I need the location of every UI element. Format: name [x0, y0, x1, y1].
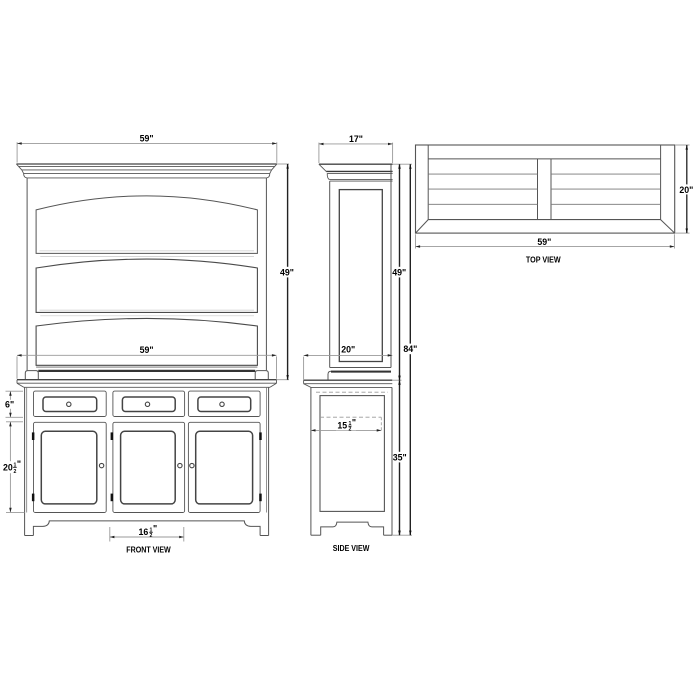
- svg-text:59": 59": [140, 345, 154, 355]
- svg-text:20": 20": [341, 345, 355, 355]
- svg-text:": ": [17, 459, 21, 469]
- svg-text:15: 15: [337, 421, 347, 431]
- svg-text:59": 59": [140, 134, 154, 144]
- svg-text:20: 20: [3, 463, 13, 473]
- svg-text:49": 49": [392, 267, 406, 277]
- svg-text:49": 49": [280, 267, 294, 277]
- svg-text:TOP VIEW: TOP VIEW: [526, 254, 561, 264]
- svg-text:35": 35": [393, 452, 407, 462]
- svg-text:6": 6": [5, 400, 14, 410]
- svg-text:20": 20": [679, 185, 693, 195]
- svg-text:": ": [352, 417, 356, 427]
- svg-text:SIDE VIEW: SIDE VIEW: [333, 543, 370, 553]
- svg-text:FRONT VIEW: FRONT VIEW: [126, 545, 171, 555]
- svg-text:17": 17": [349, 134, 363, 144]
- svg-text:16: 16: [139, 527, 149, 537]
- svg-text:2: 2: [150, 533, 153, 539]
- svg-text:2: 2: [13, 469, 16, 475]
- svg-text:59": 59": [537, 237, 551, 247]
- svg-text:": ": [153, 524, 157, 534]
- svg-text:84": 84": [403, 344, 417, 354]
